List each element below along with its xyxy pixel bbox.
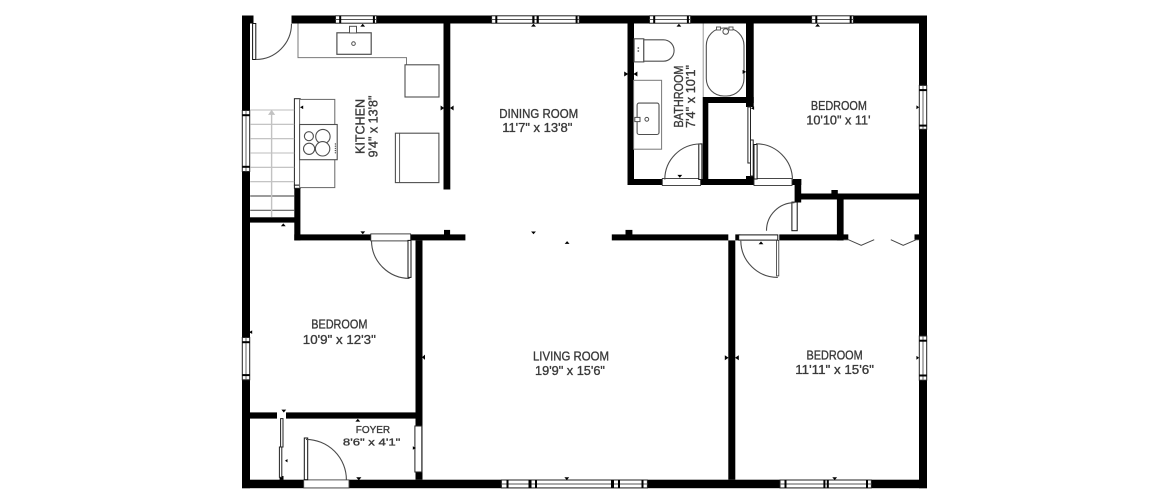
svg-text:10'10" x 11': 10'10" x 11' bbox=[806, 112, 870, 127]
svg-text:BEDROOM: BEDROOM bbox=[311, 317, 367, 332]
svg-text:8'6" x 4'1": 8'6" x 4'1" bbox=[343, 438, 401, 449]
svg-text:9'4" x 13'8": 9'4" x 13'8" bbox=[365, 95, 380, 157]
svg-text:11'7" x 13'8": 11'7" x 13'8" bbox=[502, 120, 572, 135]
svg-text:10'9" x 12'3": 10'9" x 12'3" bbox=[303, 332, 376, 347]
svg-text:11'11" x 15'6": 11'11" x 15'6" bbox=[795, 362, 874, 377]
svg-text:LIVING ROOM: LIVING ROOM bbox=[533, 348, 609, 363]
svg-text:DINING ROOM: DINING ROOM bbox=[499, 106, 578, 121]
svg-text:BEDROOM: BEDROOM bbox=[807, 348, 863, 363]
svg-text:19'9" x 15'6": 19'9" x 15'6" bbox=[535, 363, 605, 378]
svg-text:7'4" x 10'1": 7'4" x 10'1" bbox=[683, 65, 698, 128]
svg-text:BEDROOM: BEDROOM bbox=[811, 98, 867, 113]
svg-text:FOYER: FOYER bbox=[356, 425, 390, 436]
